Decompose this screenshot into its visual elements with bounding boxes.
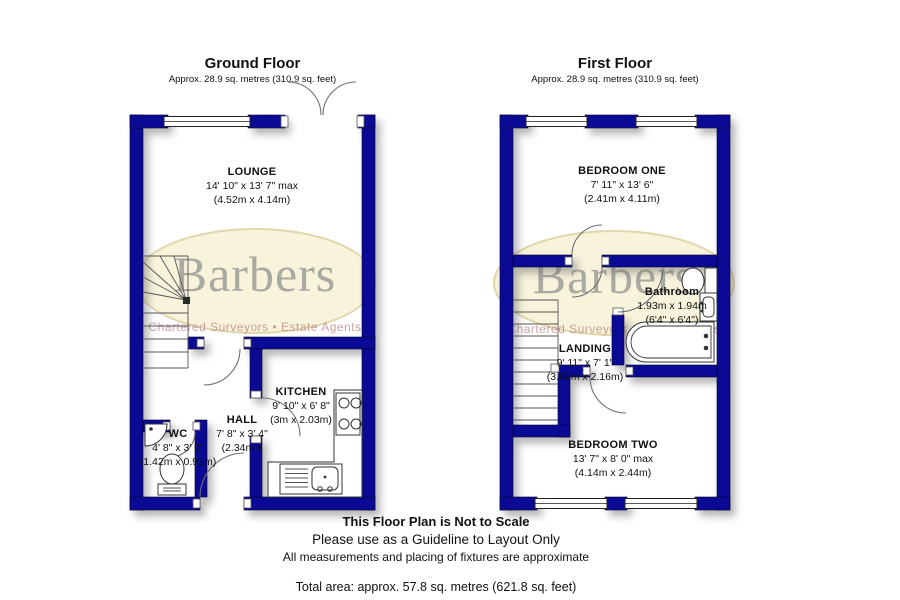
first-floor-subtitle: Approx. 28.9 sq. metres (310.9 sq. feet) [495,74,735,85]
first-floor-title: First Floor [495,55,735,72]
stair-newel [183,297,190,304]
room-dims: (4.14m x 2.44m) [568,466,657,480]
footer-line-3: All measurements and placing of fixtures… [0,550,872,564]
room-label-bathroom: Bathroom 1.93m x 1.94m (6'4" x 6'4") [637,285,706,327]
room-dims: 9' 11" x 7' 1" [547,356,623,370]
bathroom-bath-icon [626,322,714,362]
footer-total-area: Total area: approx. 57.8 sq. metres (621… [0,580,872,594]
room-dims: (2.34m x [216,441,268,455]
room-dims: 9' 10" x 6' 8" [270,399,332,413]
window-icon [164,117,250,127]
window-icon [636,117,697,127]
room-dims: 7' 11" x 13' 6" [578,178,666,192]
room-dims: 7' 8" x 3' 4" [216,427,268,441]
room-dims: 1.93m x 1.94m [637,299,706,313]
ground-floor-stairs [143,256,190,368]
room-dims: 14' 10" x 13' 7" max [206,179,298,193]
footer-line-2: Please use as a Guideline to Layout Only [0,532,872,547]
room-label-lounge: LOUNGE 14' 10" x 13' 7" max (4.52m x 4.1… [206,165,298,207]
kitchen-sink-icon [280,464,342,494]
french-door-arc-left [288,82,321,115]
floor-plan-page: Barbers Chartered Surveyors • Estate Age… [0,0,900,600]
room-name: WC [140,427,216,441]
room-name: LOUNGE [206,165,298,179]
room-dims: (1.42m x 0.91m) [140,455,216,469]
room-label-wc: WC 4' 8" x 3' 0" (1.42m x 0.91m) [140,427,216,469]
floor-plan-canvas [0,0,900,600]
room-dims: 13' 7" x 8' 0" max [568,452,657,466]
footer-disclaimer: This Floor Plan is Not to Scale Please u… [0,514,872,594]
ground-floor-windows [164,117,250,127]
room-label-landing: LANDING 9' 11" x 7' 1" (3.02m x 2.16m) [547,342,623,384]
first-floor-title-block: First Floor Approx. 28.9 sq. metres (310… [495,55,735,85]
room-dims: (6'4" x 6'4") [637,313,706,327]
room-label-hall: HALL 7' 8" x 3' 4" (2.34m x [216,413,268,455]
bedroom-one-door-arc [572,225,602,255]
room-dims: (3.02m x 2.16m) [547,370,623,384]
window-icon [625,499,697,509]
landing-door-arc [572,267,602,297]
french-door-arc-right [323,82,356,115]
room-name: BEDROOM TWO [568,438,657,452]
room-dims: (2.41m x 4.11m) [578,192,666,206]
room-name: KITCHEN [270,385,332,399]
room-label-kitchen: KITCHEN 9' 10" x 6' 8" (3m x 2.03m) [270,385,332,427]
window-icon [526,117,587,127]
window-icon [535,499,607,509]
hall-door-arc [204,349,240,385]
ground-floor-subtitle: Approx. 28.9 sq. metres (310.9 sq. feet) [130,74,375,85]
footer-line-1: This Floor Plan is Not to Scale [0,514,872,529]
room-label-bedroom-two: BEDROOM TWO 13' 7" x 8' 0" max (4.14m x … [568,438,657,480]
room-name: HALL [216,413,268,427]
room-name: Bathroom [637,285,706,299]
room-name: BEDROOM ONE [578,164,666,178]
ground-floor-title: Ground Floor [130,55,375,72]
room-label-bedroom-one: BEDROOM ONE 7' 11" x 13' 6" (2.41m x 4.1… [578,164,666,206]
ground-floor-title-block: Ground Floor Approx. 28.9 sq. metres (31… [130,55,375,85]
room-name: LANDING [547,342,623,356]
hob-icon [336,393,361,435]
room-dims: 4' 8" x 3' 0" [140,441,216,455]
room-dims: (3m x 2.03m) [270,413,332,427]
room-dims: (4.52m x 4.14m) [206,193,298,207]
